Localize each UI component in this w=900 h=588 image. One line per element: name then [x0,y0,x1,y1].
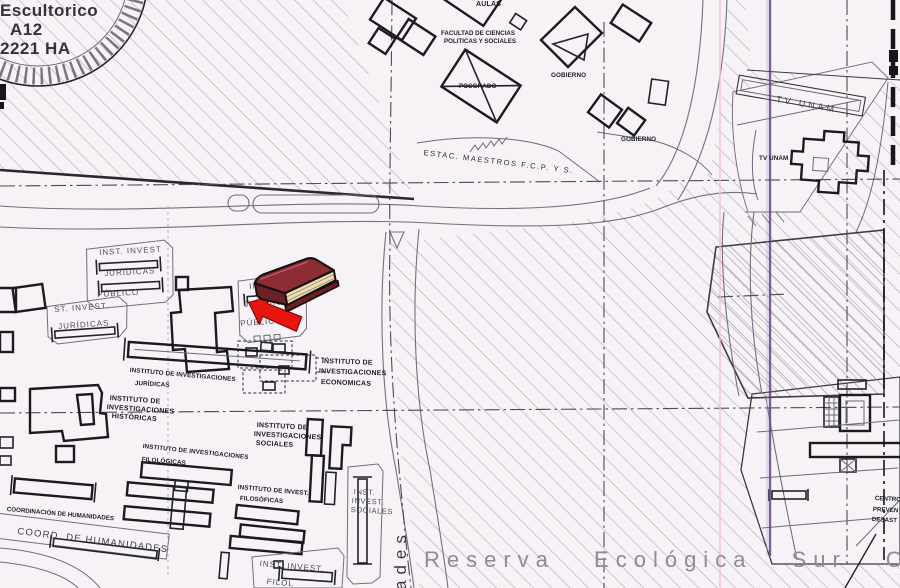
label-gobierno-2: GOBIERNO [621,137,656,143]
stamp-text-line1: Escultorico [0,2,98,19]
label-tv-unam: TV UNAM [759,156,788,162]
label-fcpys-line2: POLITICAS Y SOCIALES [444,39,516,45]
label-aulas: AULAS [476,1,501,8]
label-fcpys-line1: FACULTAD DE CIENCIAS [441,31,515,37]
label-cenapred-line1: CENTRO [875,496,900,504]
label-inst-invest-sociales-line3: SOCIALES [351,506,394,516]
label-cenapred-line3: DESAST [872,517,897,525]
map-canvas[interactable]: .t{fill:none;stroke:#1b1b1f;stroke-width… [0,0,900,588]
label-cenapred-line2: PREVEN [873,507,899,515]
label-posgrado: POSGRADO [459,84,497,90]
stamp-text-line2: A12 [10,21,43,38]
label-gobierno-1: GOBIERNO [551,73,586,79]
stamp-text-line3: 2221 HA [0,40,71,57]
label-street-humanidades-vertical: ades [392,480,409,588]
label-reserva-ecologica: Reserva Ecológica Sur Or [424,549,900,571]
